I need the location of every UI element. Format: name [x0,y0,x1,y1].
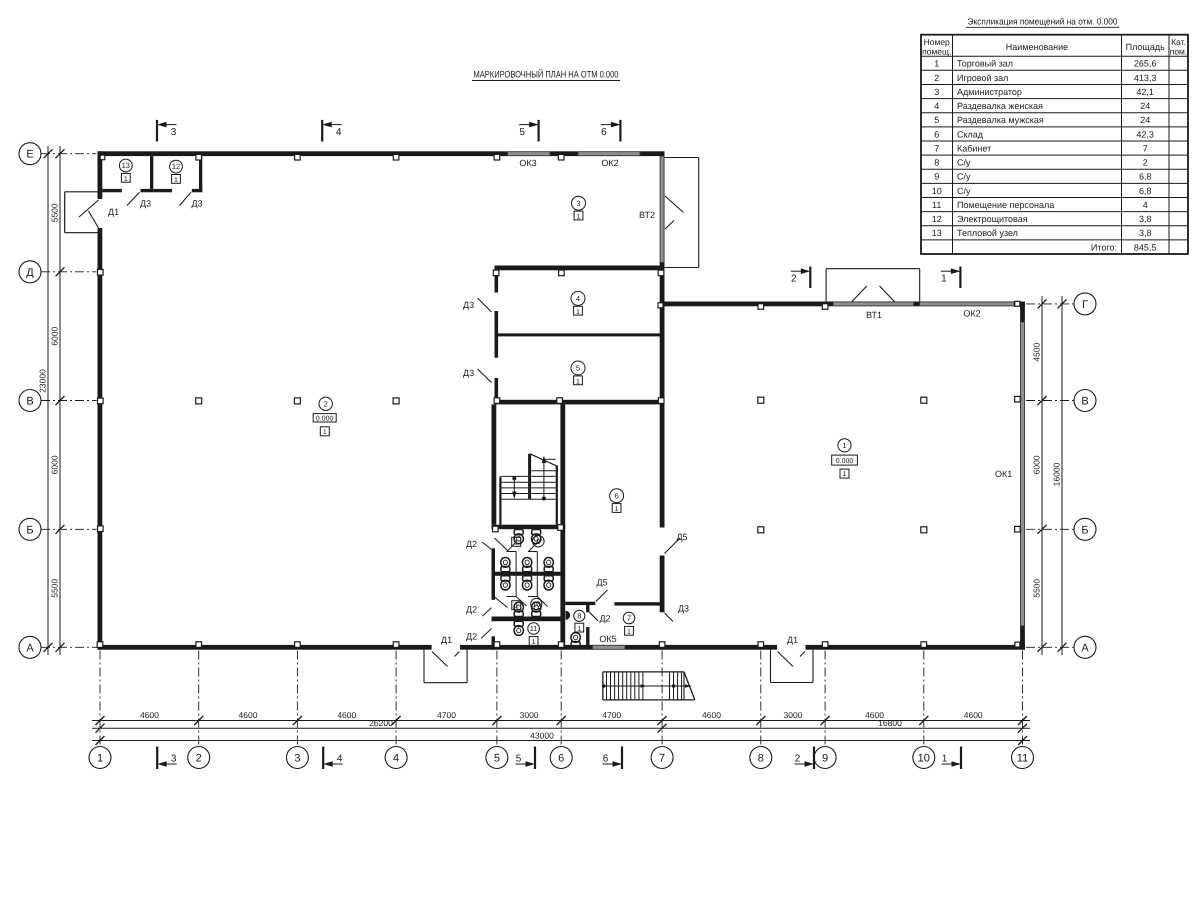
svg-text:4: 4 [1143,200,1148,210]
svg-text:2: 2 [795,754,801,765]
svg-text:16000: 16000 [1052,462,1062,486]
svg-text:1: 1 [97,753,103,765]
svg-text:Д2: Д2 [599,614,610,624]
svg-text:1: 1 [627,629,631,636]
svg-text:1: 1 [576,309,580,316]
svg-text:1: 1 [577,214,581,221]
svg-text:6000: 6000 [50,326,60,345]
svg-text:4: 4 [934,101,939,111]
svg-text:Д5: Д5 [676,532,687,542]
svg-text:2: 2 [324,400,328,409]
svg-text:1: 1 [174,177,178,184]
svg-text:265,6: 265,6 [1134,59,1157,69]
svg-text:6: 6 [601,127,607,138]
svg-text:Д1: Д1 [787,635,798,645]
svg-text:4600: 4600 [702,710,721,720]
svg-text:Е: Е [26,149,33,161]
svg-text:5500: 5500 [1032,579,1042,598]
svg-text:1: 1 [124,176,128,183]
svg-text:1: 1 [514,539,518,546]
svg-text:42,1: 42,1 [1136,87,1154,97]
svg-text:Наименование: Наименование [1006,42,1068,52]
svg-text:3000: 3000 [784,710,803,720]
svg-text:Кат.: Кат. [1171,37,1186,47]
svg-text:5: 5 [576,364,580,373]
svg-text:Администратор: Администратор [957,87,1022,97]
svg-text:А: А [1081,642,1089,654]
svg-text:Площадь: Площадь [1126,42,1165,52]
svg-text:6,8: 6,8 [1139,186,1152,196]
svg-text:ОК2: ОК2 [601,158,618,168]
svg-text:1: 1 [843,471,847,478]
svg-text:4500: 4500 [1032,342,1042,361]
svg-text:Д2: Д2 [466,605,477,615]
svg-text:7: 7 [934,143,939,153]
svg-text:8: 8 [577,611,581,620]
svg-text:5: 5 [516,754,522,765]
svg-text:3,8: 3,8 [1139,214,1152,224]
svg-text:6: 6 [603,754,609,765]
svg-text:Склад: Склад [957,129,984,139]
svg-text:1: 1 [323,429,327,436]
svg-text:16800: 16800 [878,718,902,728]
svg-text:С/у: С/у [957,158,971,168]
svg-text:В: В [1081,396,1088,408]
svg-text:9: 9 [536,537,540,546]
svg-text:С/у: С/у [957,172,971,182]
svg-text:7: 7 [627,614,631,623]
svg-text:6: 6 [934,129,939,139]
svg-text:ВТ2: ВТ2 [639,210,655,220]
svg-text:ВТ1: ВТ1 [866,310,882,320]
svg-text:42,3: 42,3 [1136,129,1154,139]
svg-text:Раздевалка женская: Раздевалка женская [957,101,1043,111]
svg-text:5: 5 [494,753,500,765]
svg-text:5: 5 [934,115,939,125]
svg-text:7: 7 [659,753,665,765]
svg-text:Тепловой узел: Тепловой узел [957,228,1018,238]
svg-text:10: 10 [918,753,930,765]
svg-text:Д3: Д3 [192,199,203,209]
svg-text:Игровой зал: Игровой зал [957,73,1008,83]
svg-text:3: 3 [576,199,580,208]
svg-text:ОК5: ОК5 [599,634,616,644]
svg-text:10: 10 [532,600,540,609]
svg-text:6000: 6000 [50,455,60,474]
svg-text:8: 8 [934,158,939,168]
svg-text:1: 1 [514,603,518,610]
svg-text:5: 5 [519,127,525,138]
svg-text:Д2: Д2 [466,632,477,642]
svg-text:Итого:: Итого: [1091,242,1117,252]
svg-text:43000: 43000 [530,731,554,741]
svg-text:26200: 26200 [369,718,393,728]
svg-text:помещ.: помещ. [922,47,951,57]
svg-text:1: 1 [532,639,536,646]
svg-text:Торговый зал: Торговый зал [957,59,1013,69]
svg-text:4: 4 [393,753,399,765]
svg-text:5500: 5500 [50,579,60,598]
svg-text:5500: 5500 [50,203,60,222]
svg-text:2: 2 [791,274,797,285]
svg-text:3: 3 [934,87,939,97]
svg-text:12: 12 [932,214,942,224]
svg-text:10: 10 [932,186,942,196]
svg-text:А: А [26,642,34,654]
svg-text:0.000: 0.000 [316,415,334,422]
svg-text:413,3: 413,3 [1134,73,1157,83]
svg-text:11: 11 [932,200,941,210]
svg-text:13: 13 [932,228,942,238]
svg-text:В: В [26,396,33,408]
svg-text:С/у: С/у [957,186,971,196]
svg-text:Экспликация помещений на отм.: Экспликация помещений на отм. 0.000 [968,17,1118,27]
svg-text:6: 6 [558,753,564,765]
svg-text:1: 1 [577,626,581,633]
svg-text:24: 24 [1140,115,1150,125]
svg-text:Д2: Д2 [466,539,477,549]
svg-text:2: 2 [934,73,939,83]
svg-text:пом.: пом. [1170,47,1188,57]
svg-text:12: 12 [172,162,180,171]
svg-text:Кабинет: Кабинет [957,143,991,153]
svg-text:1: 1 [576,379,580,386]
svg-text:Электрощитовая: Электрощитовая [957,214,1028,224]
svg-text:1: 1 [615,506,619,513]
svg-text:Б: Б [26,524,33,536]
svg-text:Д3: Д3 [678,604,689,614]
svg-text:Раздевалка мужская: Раздевалка мужская [957,115,1044,125]
svg-text:Помещение персонала: Помещение персонала [957,200,1054,210]
svg-text:Д: Д [26,267,34,279]
svg-text:Д3: Д3 [140,199,151,209]
svg-text:6,8: 6,8 [1139,172,1152,182]
svg-text:3,8: 3,8 [1139,228,1152,238]
svg-text:2: 2 [196,753,202,765]
svg-text:1: 1 [934,59,939,69]
svg-text:3: 3 [294,753,300,765]
svg-text:4600: 4600 [140,710,159,720]
svg-text:2: 2 [1143,158,1148,168]
svg-text:0.000: 0.000 [836,458,854,465]
svg-text:9: 9 [934,172,939,182]
svg-text:8: 8 [758,753,764,765]
svg-text:ОК2: ОК2 [963,309,980,319]
svg-text:Д1: Д1 [108,207,119,217]
svg-text:4700: 4700 [437,710,456,720]
svg-text:6000: 6000 [1032,455,1042,474]
svg-text:Д3: Д3 [463,300,474,310]
svg-text:4600: 4600 [964,710,983,720]
svg-text:ОК1: ОК1 [995,469,1012,479]
svg-text:3: 3 [171,127,177,138]
svg-text:1: 1 [942,754,948,765]
svg-text:1: 1 [842,441,846,450]
svg-text:Номер: Номер [924,37,950,47]
svg-text:4: 4 [576,294,580,303]
svg-text:23000: 23000 [38,369,48,393]
svg-text:11: 11 [530,624,538,633]
svg-text:1: 1 [941,274,947,285]
svg-text:845,5: 845,5 [1134,242,1157,252]
svg-text:МАРКИРОВОЧНЫЙ ПЛАН НА ОТМ 0.00: МАРКИРОВОЧНЫЙ ПЛАН НА ОТМ 0.000 [474,69,619,81]
svg-text:6: 6 [615,491,619,500]
svg-text:4600: 4600 [337,710,356,720]
svg-text:ОК3: ОК3 [519,158,536,168]
svg-text:4600: 4600 [239,710,258,720]
svg-text:13: 13 [122,161,130,170]
svg-text:4: 4 [336,127,342,138]
svg-text:3000: 3000 [520,710,539,720]
svg-text:4700: 4700 [602,710,621,720]
svg-text:11: 11 [1017,753,1028,765]
svg-text:Б: Б [1081,524,1088,536]
svg-text:Д3: Д3 [463,368,474,378]
svg-text:24: 24 [1140,101,1150,111]
svg-text:9: 9 [822,753,828,765]
svg-text:4: 4 [337,754,343,765]
svg-text:Д1: Д1 [441,635,452,645]
svg-text:Г: Г [1082,299,1088,311]
svg-text:3: 3 [171,754,177,765]
svg-text:7: 7 [1143,143,1148,153]
svg-text:Д5: Д5 [596,578,607,588]
